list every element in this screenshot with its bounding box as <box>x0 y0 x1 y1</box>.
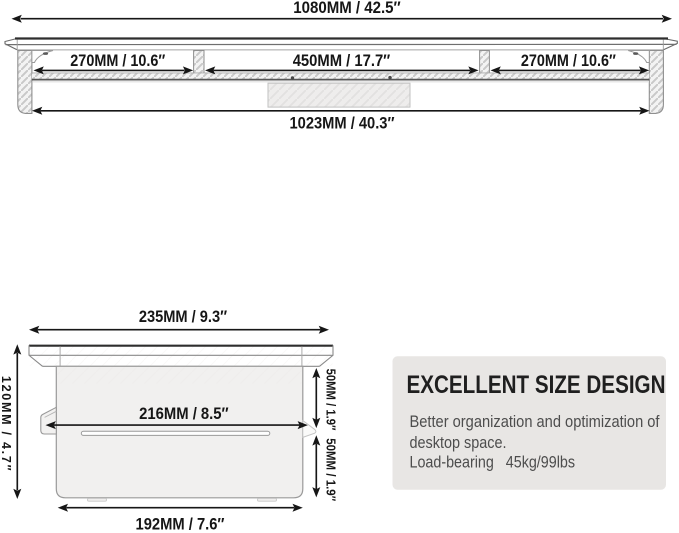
svg-text:50MM / 1.9″: 50MM / 1.9″ <box>324 438 338 501</box>
svg-text:1080MM / 42.5″: 1080MM / 42.5″ <box>293 0 401 17</box>
svg-text:120MM / 4.7″: 120MM / 4.7″ <box>0 376 13 472</box>
svg-text:270MM / 10.6″: 270MM / 10.6″ <box>521 52 616 70</box>
svg-text:desktop space.: desktop space. <box>410 433 507 452</box>
svg-text:Load-bearing 45kg/99lbs: Load-bearing 45kg/99lbs <box>410 452 576 471</box>
svg-text:EXCELLENT SIZE DESIGN: EXCELLENT SIZE DESIGN <box>407 371 666 399</box>
svg-text:216MM / 8.5″: 216MM / 8.5″ <box>139 405 229 423</box>
svg-text:192MM / 7.6″: 192MM / 7.6″ <box>136 516 225 533</box>
svg-text:50MM / 1.9″: 50MM / 1.9″ <box>324 369 338 431</box>
svg-text:235MM / 9.3″: 235MM / 9.3″ <box>139 308 227 326</box>
svg-text:Better organization and optimi: Better organization and optimization of <box>410 412 660 431</box>
svg-text:450MM / 17.7″: 450MM / 17.7″ <box>293 52 391 70</box>
svg-text:270MM / 10.6″: 270MM / 10.6″ <box>70 52 165 70</box>
svg-text:1023MM / 40.3″: 1023MM / 40.3″ <box>290 115 395 133</box>
